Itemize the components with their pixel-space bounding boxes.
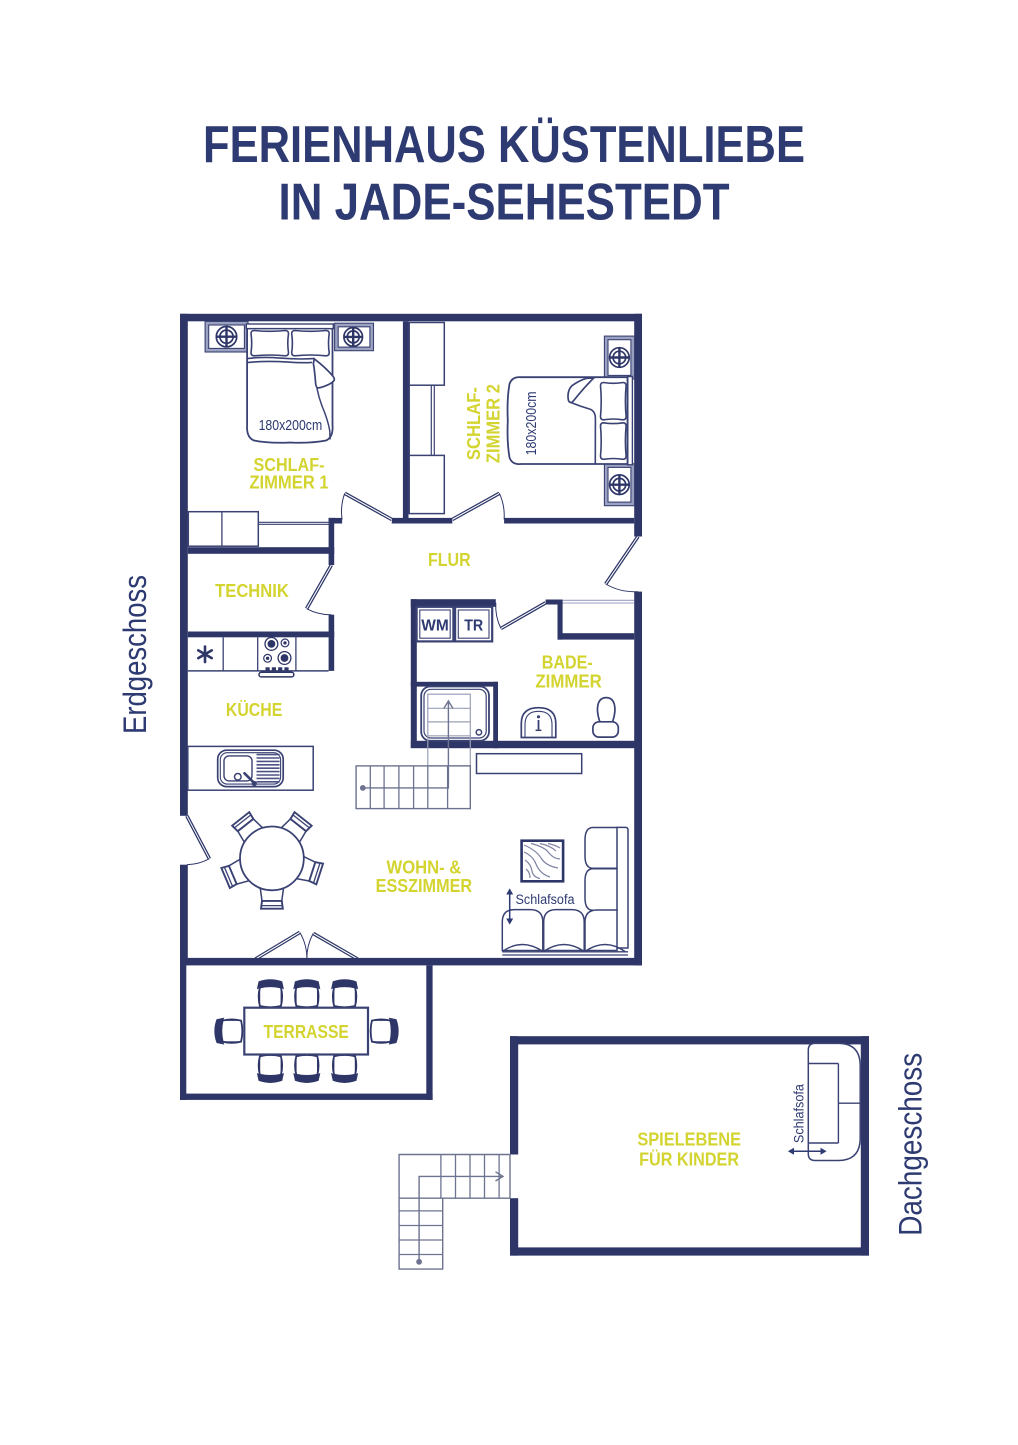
svg-text:IN JADE-SEHESTEDT: IN JADE-SEHESTEDT [279, 173, 730, 231]
svg-text:SPIELEBENE: SPIELEBENE [637, 1128, 741, 1149]
svg-text:WM: WM [421, 618, 449, 635]
svg-text:ESSZIMMER: ESSZIMMER [376, 875, 473, 896]
svg-text:SCHLAF-: SCHLAF- [463, 387, 484, 460]
svg-text:ZIMMER: ZIMMER [535, 671, 601, 692]
svg-text:FERIENHAUS KÜSTENLIEBE: FERIENHAUS KÜSTENLIEBE [203, 115, 805, 173]
svg-text:180x200cm: 180x200cm [259, 417, 323, 434]
svg-text:Schlafsofa: Schlafsofa [792, 1084, 807, 1143]
svg-text:TERRASSE: TERRASSE [264, 1021, 349, 1042]
svg-text:FÜR KINDER: FÜR KINDER [639, 1149, 739, 1170]
svg-text:ZIMMER 2: ZIMMER 2 [483, 384, 504, 463]
svg-text:Erdgeschoss: Erdgeschoss [117, 575, 153, 734]
svg-text:Schlafsofa: Schlafsofa [516, 892, 575, 907]
svg-text:TR: TR [464, 618, 483, 635]
svg-text:TECHNIK: TECHNIK [215, 580, 289, 601]
svg-text:180x200cm: 180x200cm [523, 391, 540, 455]
svg-text:ZIMMER 1: ZIMMER 1 [249, 472, 328, 493]
svg-text:BADE-: BADE- [542, 652, 593, 673]
svg-text:FLUR: FLUR [428, 549, 471, 570]
svg-text:KÜCHE: KÜCHE [226, 699, 282, 720]
svg-text:Dachgeschoss: Dachgeschoss [893, 1053, 929, 1236]
